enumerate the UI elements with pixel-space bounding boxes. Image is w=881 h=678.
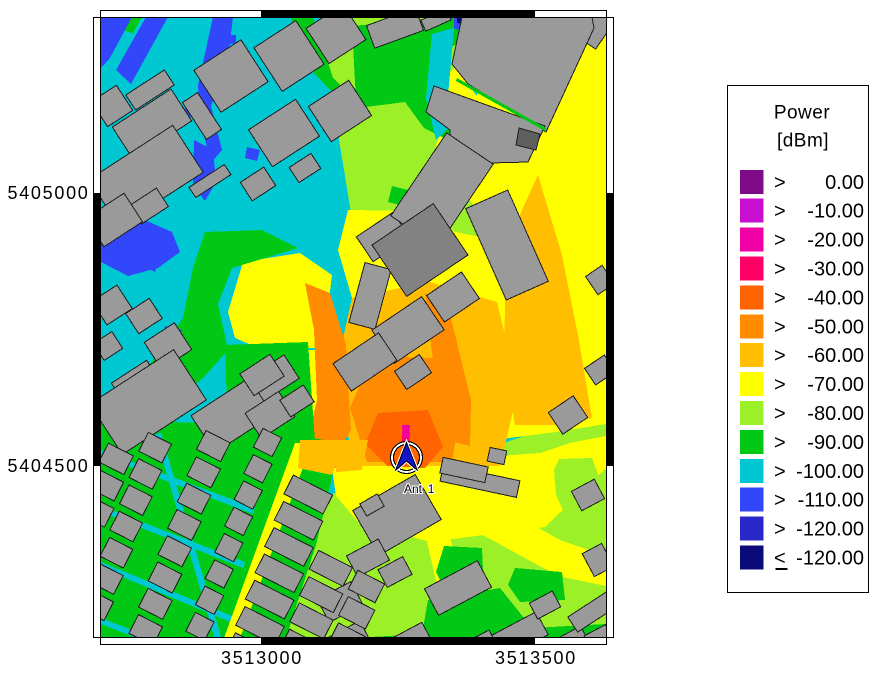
svg-text:-80.00: -80.00 bbox=[807, 403, 864, 425]
svg-text:-70.00: -70.00 bbox=[807, 374, 864, 396]
svg-text:>: > bbox=[774, 287, 786, 309]
svg-text:-120.00: -120.00 bbox=[796, 519, 864, 541]
svg-text:>: > bbox=[774, 432, 786, 454]
svg-text:[dBm]: [dBm] bbox=[777, 131, 829, 152]
svg-text:>: > bbox=[774, 374, 786, 396]
svg-text:>: > bbox=[774, 172, 786, 194]
svg-text:3513000: 3513000 bbox=[221, 648, 303, 668]
svg-text:-90.00: -90.00 bbox=[807, 432, 864, 454]
svg-text:-50.00: -50.00 bbox=[807, 316, 864, 338]
svg-text:Ant 1: Ant 1 bbox=[404, 482, 435, 496]
svg-text:>: > bbox=[774, 403, 786, 425]
svg-text:>: > bbox=[774, 201, 786, 223]
svg-text:>: > bbox=[774, 519, 786, 541]
svg-text:>: > bbox=[774, 230, 786, 252]
svg-text:<: < bbox=[774, 548, 786, 570]
svg-text:-30.00: -30.00 bbox=[807, 259, 864, 281]
svg-text:>: > bbox=[774, 316, 786, 338]
svg-text:-10.00: -10.00 bbox=[807, 201, 864, 223]
svg-text:>: > bbox=[774, 345, 786, 367]
svg-text:5404500: 5404500 bbox=[8, 456, 90, 476]
svg-text:-120.00: -120.00 bbox=[796, 548, 864, 570]
svg-text:3513500: 3513500 bbox=[495, 648, 577, 668]
svg-text:-20.00: -20.00 bbox=[807, 230, 864, 252]
svg-text:-110.00: -110.00 bbox=[798, 490, 864, 512]
svg-text:-40.00: -40.00 bbox=[807, 287, 864, 309]
svg-text:Power: Power bbox=[774, 103, 831, 124]
svg-text:-60.00: -60.00 bbox=[807, 345, 864, 367]
svg-text:5405000: 5405000 bbox=[8, 183, 90, 203]
svg-text:>: > bbox=[774, 461, 786, 483]
svg-text:>: > bbox=[774, 490, 786, 512]
svg-text:-100.00: -100.00 bbox=[796, 461, 864, 483]
svg-text:>: > bbox=[774, 259, 786, 281]
svg-text:0.00: 0.00 bbox=[825, 172, 864, 194]
